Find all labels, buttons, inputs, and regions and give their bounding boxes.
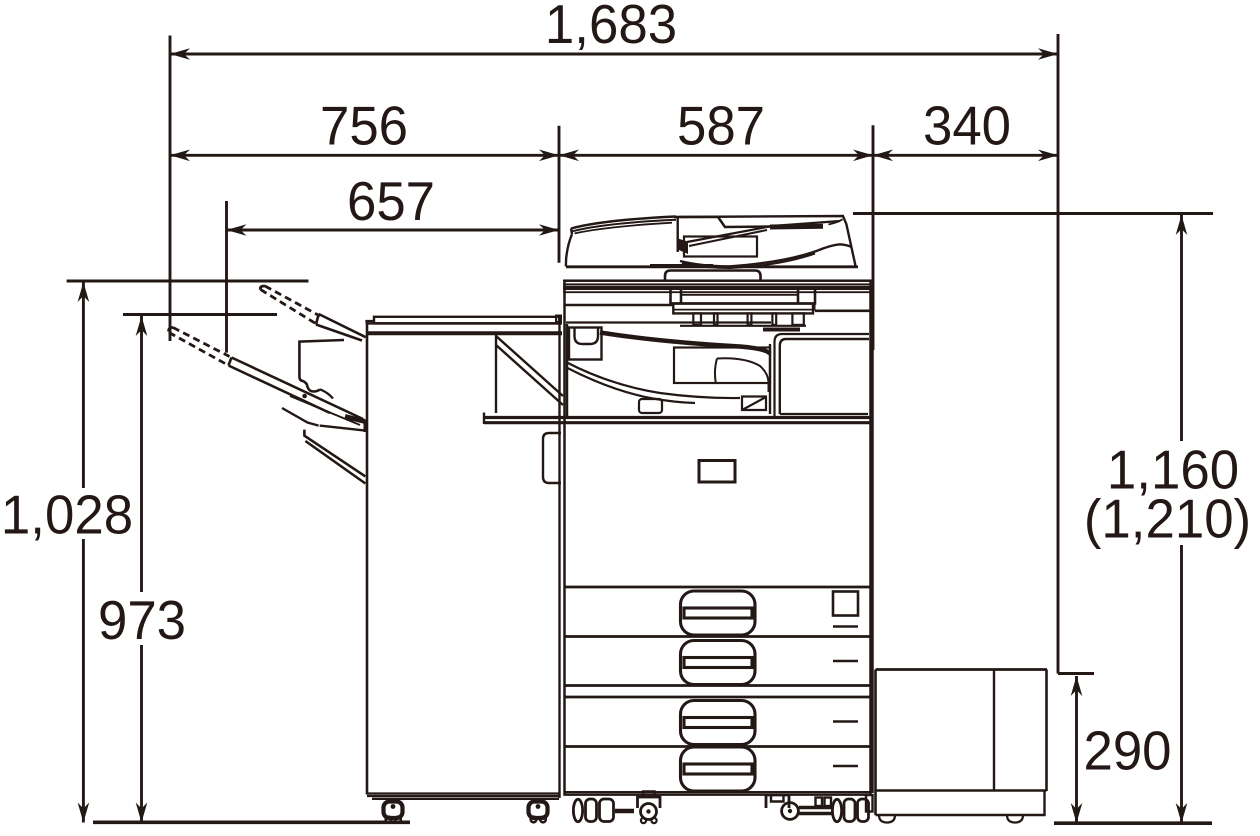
svg-text:1,683: 1,683 xyxy=(545,0,677,55)
svg-text:657: 657 xyxy=(347,171,435,232)
svg-text:340: 340 xyxy=(923,96,1011,157)
svg-text:587: 587 xyxy=(677,96,765,157)
svg-text:1,028: 1,028 xyxy=(1,485,133,546)
svg-text:973: 973 xyxy=(98,590,186,651)
svg-text:(1,210): (1,210) xyxy=(1084,489,1251,550)
svg-text:756: 756 xyxy=(320,96,408,157)
svg-text:290: 290 xyxy=(1083,721,1171,782)
